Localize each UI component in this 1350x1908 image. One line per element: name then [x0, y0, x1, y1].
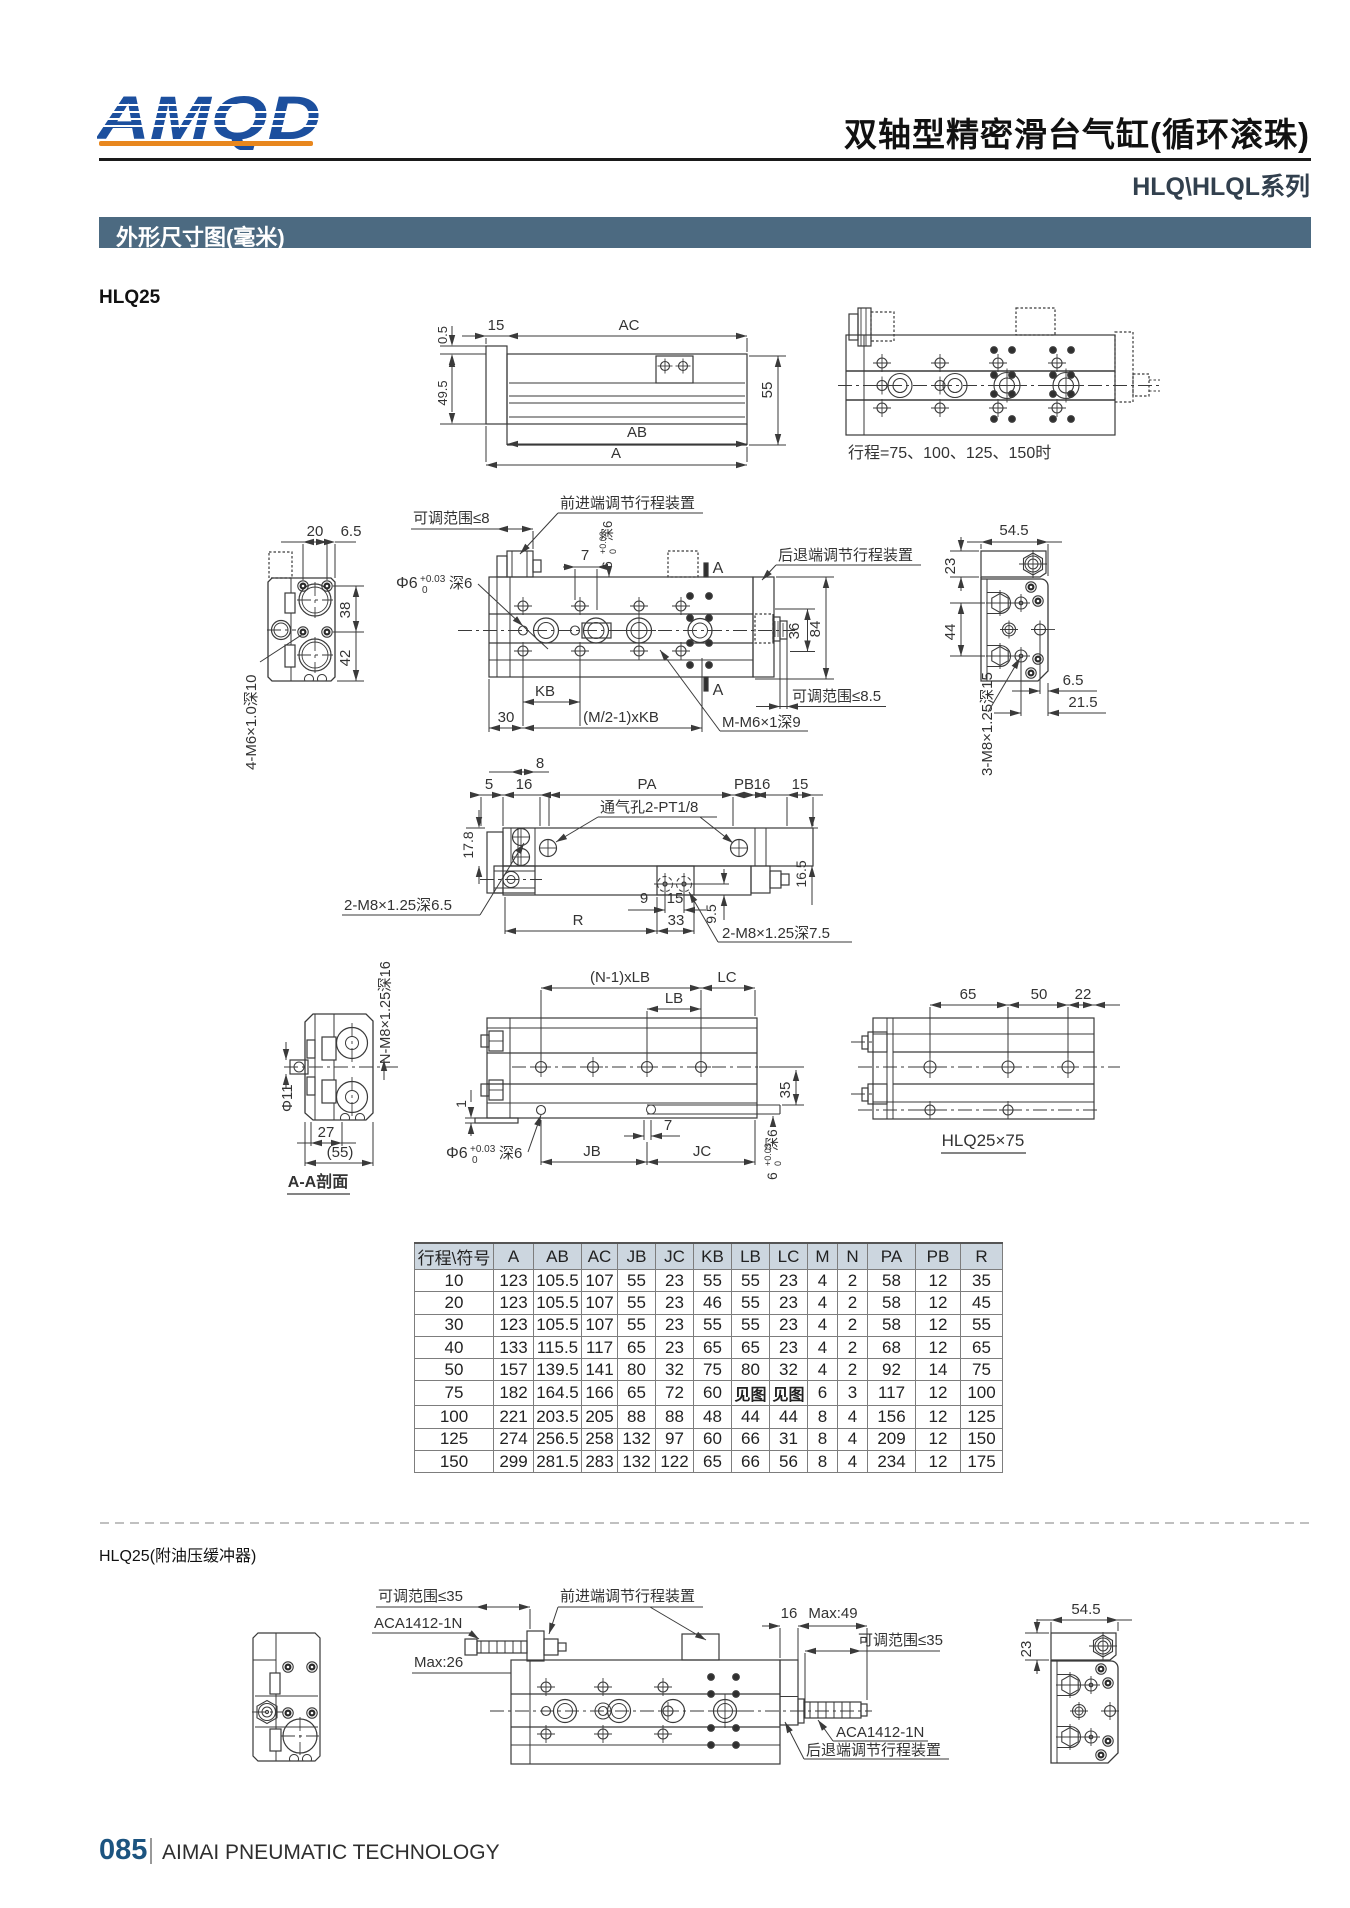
svg-text:后退端调节行程装置: 后退端调节行程装置 — [778, 547, 913, 564]
svg-text:8: 8 — [536, 755, 544, 772]
svg-text:PB: PB — [734, 776, 754, 793]
svg-text:50: 50 — [1031, 986, 1048, 1003]
svg-text:33: 33 — [668, 912, 685, 929]
svg-text:0: 0 — [608, 549, 618, 554]
svg-text:54.5: 54.5 — [1071, 1601, 1100, 1618]
svg-text:55: 55 — [759, 382, 776, 399]
svg-text:2-M8×1.25深7.5: 2-M8×1.25深7.5 — [722, 925, 830, 942]
svg-text:35: 35 — [777, 1082, 794, 1099]
svg-text:AB: AB — [627, 424, 647, 441]
svg-text:LC: LC — [717, 969, 736, 986]
svg-text:1: 1 — [453, 1100, 469, 1108]
svg-text:KB: KB — [535, 683, 555, 700]
svg-text:6.5: 6.5 — [341, 523, 362, 540]
svg-text:49.5: 49.5 — [435, 380, 450, 405]
svg-text:A: A — [611, 445, 621, 462]
svg-text:Max:26: Max:26 — [414, 1654, 463, 1671]
svg-text:JB: JB — [583, 1143, 601, 1160]
svg-text:M-M6×1深9: M-M6×1深9 — [722, 714, 801, 731]
svg-text:0: 0 — [472, 1155, 478, 1166]
svg-text:36: 36 — [786, 623, 803, 640]
svg-text:16: 16 — [781, 1605, 798, 1622]
svg-text:44: 44 — [942, 624, 959, 641]
svg-text:深6: 深6 — [499, 1145, 522, 1162]
svg-text:23: 23 — [1018, 1641, 1035, 1658]
svg-text:JC: JC — [693, 1143, 712, 1160]
svg-text:可调范围≤35: 可调范围≤35 — [858, 1632, 943, 1649]
svg-text:6.5: 6.5 — [1063, 672, 1084, 689]
svg-text:23: 23 — [942, 558, 959, 575]
svg-text:16.5: 16.5 — [793, 860, 809, 887]
svg-text:9: 9 — [640, 890, 648, 907]
svg-text:Φ6: Φ6 — [396, 575, 418, 592]
svg-text:PA: PA — [638, 776, 657, 793]
svg-text:4-M6×1.0深10: 4-M6×1.0深10 — [243, 675, 260, 770]
svg-text:N-M8×1.25深16: N-M8×1.25深16 — [377, 961, 394, 1064]
svg-text:LB: LB — [665, 990, 683, 1007]
svg-text:前进端调节行程装置: 前进端调节行程装置 — [560, 1588, 695, 1605]
svg-text:65: 65 — [960, 986, 977, 1003]
svg-text:+0.03: +0.03 — [470, 1144, 496, 1155]
svg-text:可调范围≤8.5: 可调范围≤8.5 — [792, 688, 881, 705]
svg-text:深6: 深6 — [764, 1129, 780, 1151]
svg-text:0: 0 — [773, 1161, 783, 1166]
svg-text:A: A — [713, 560, 724, 577]
svg-text:0.5: 0.5 — [435, 326, 450, 344]
svg-text:深6: 深6 — [600, 521, 615, 541]
svg-text:2-M8×1.25深6.5: 2-M8×1.25深6.5 — [344, 897, 452, 914]
svg-text:16: 16 — [516, 776, 533, 793]
svg-text:Max:49: Max:49 — [808, 1605, 857, 1622]
svg-text:54.5: 54.5 — [999, 522, 1028, 539]
svg-text:A: A — [713, 682, 724, 699]
svg-text:7: 7 — [664, 1117, 672, 1134]
svg-text:前进端调节行程装置: 前进端调节行程装置 — [560, 495, 695, 512]
svg-text:ACA1412-1N: ACA1412-1N — [374, 1615, 462, 1632]
svg-text:(M/2-1)xKB: (M/2-1)xKB — [583, 709, 659, 726]
svg-text:27: 27 — [318, 1124, 335, 1141]
svg-text:HLQ25×75: HLQ25×75 — [942, 1131, 1025, 1150]
svg-text:(55): (55) — [327, 1144, 354, 1161]
svg-text:5: 5 — [485, 776, 493, 793]
svg-text:16: 16 — [754, 776, 771, 793]
svg-text:42: 42 — [337, 650, 354, 667]
svg-text:深6: 深6 — [449, 575, 472, 592]
svg-text:Φ6: Φ6 — [446, 1145, 468, 1162]
svg-text:R: R — [573, 912, 584, 929]
svg-text:22: 22 — [1075, 986, 1092, 1003]
svg-text:20: 20 — [307, 523, 324, 540]
svg-text:21.5: 21.5 — [1068, 694, 1097, 711]
svg-text:可调范围≤35: 可调范围≤35 — [378, 1588, 463, 1605]
svg-text:Φ11: Φ11 — [279, 1084, 296, 1112]
svg-text:84: 84 — [807, 621, 824, 638]
svg-text:0: 0 — [422, 585, 428, 596]
svg-text:17.8: 17.8 — [460, 831, 476, 858]
svg-text:15: 15 — [488, 317, 505, 334]
svg-text:A-A剖面: A-A剖面 — [288, 1172, 348, 1191]
svg-text:15: 15 — [667, 890, 684, 907]
svg-text:+0.03: +0.03 — [420, 574, 446, 585]
svg-text:(N-1)xLB: (N-1)xLB — [590, 969, 650, 986]
svg-text:15: 15 — [792, 776, 809, 793]
svg-text:7: 7 — [581, 547, 589, 564]
svg-text:3-M8×1.25深15: 3-M8×1.25深15 — [979, 672, 996, 776]
svg-text:6: 6 — [764, 1172, 780, 1180]
svg-text:通气孔2-PT1/8: 通气孔2-PT1/8 — [600, 799, 698, 816]
svg-text:行程=75、100、125、150时: 行程=75、100、125、150时 — [848, 444, 1051, 462]
svg-text:38: 38 — [337, 602, 354, 619]
svg-text:AC: AC — [619, 317, 640, 334]
svg-text:ACA1412-1N: ACA1412-1N — [836, 1724, 924, 1741]
svg-text:可调范围≤8: 可调范围≤8 — [413, 510, 490, 527]
svg-text:后退端调节行程装置: 后退端调节行程装置 — [806, 1742, 941, 1759]
svg-text:30: 30 — [498, 709, 515, 726]
